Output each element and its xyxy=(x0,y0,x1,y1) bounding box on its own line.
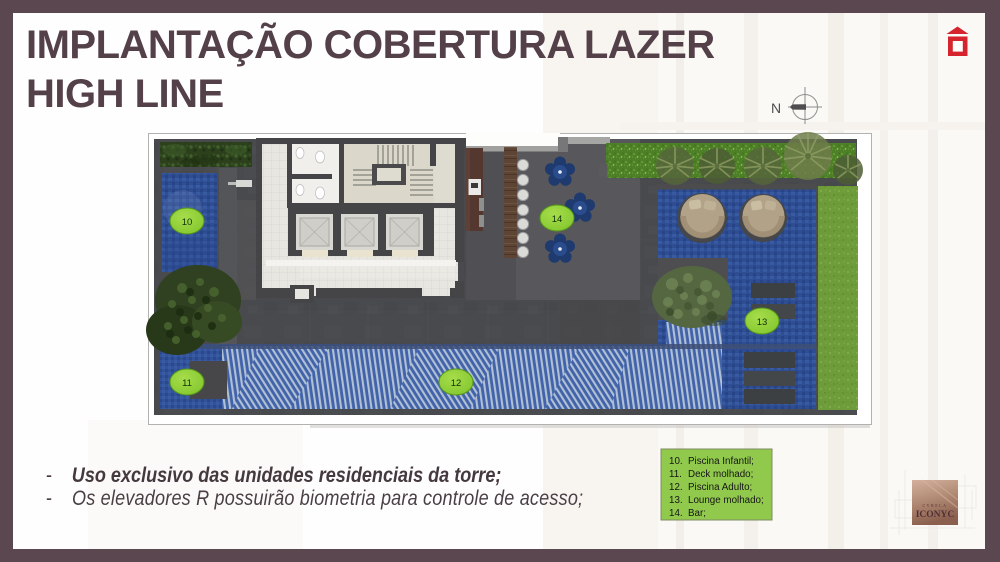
svg-text:11: 11 xyxy=(182,378,192,389)
svg-text:11.: 11. xyxy=(669,469,682,480)
svg-text:10.: 10. xyxy=(669,456,683,467)
svg-text:Deck molhado;: Deck molhado; xyxy=(688,469,753,480)
svg-text:Piscina Infantil;: Piscina Infantil; xyxy=(688,456,754,467)
svg-text:12: 12 xyxy=(451,378,462,389)
svg-text:13.: 13. xyxy=(669,495,683,506)
svg-text:Lounge molhado;: Lounge molhado; xyxy=(688,495,764,506)
svg-text:12.: 12. xyxy=(669,482,683,493)
svg-text:ICONYC: ICONYC xyxy=(916,510,955,520)
svg-text:N: N xyxy=(771,100,781,116)
svg-text:14.: 14. xyxy=(669,508,683,519)
svg-text:13: 13 xyxy=(757,317,768,328)
svg-text:14: 14 xyxy=(552,214,563,225)
svg-text:CYRELA: CYRELA xyxy=(923,503,948,508)
svg-text:Bar;: Bar; xyxy=(688,508,706,519)
svg-text:10: 10 xyxy=(182,217,193,228)
svg-text:Piscina Adulto;: Piscina Adulto; xyxy=(688,482,752,493)
